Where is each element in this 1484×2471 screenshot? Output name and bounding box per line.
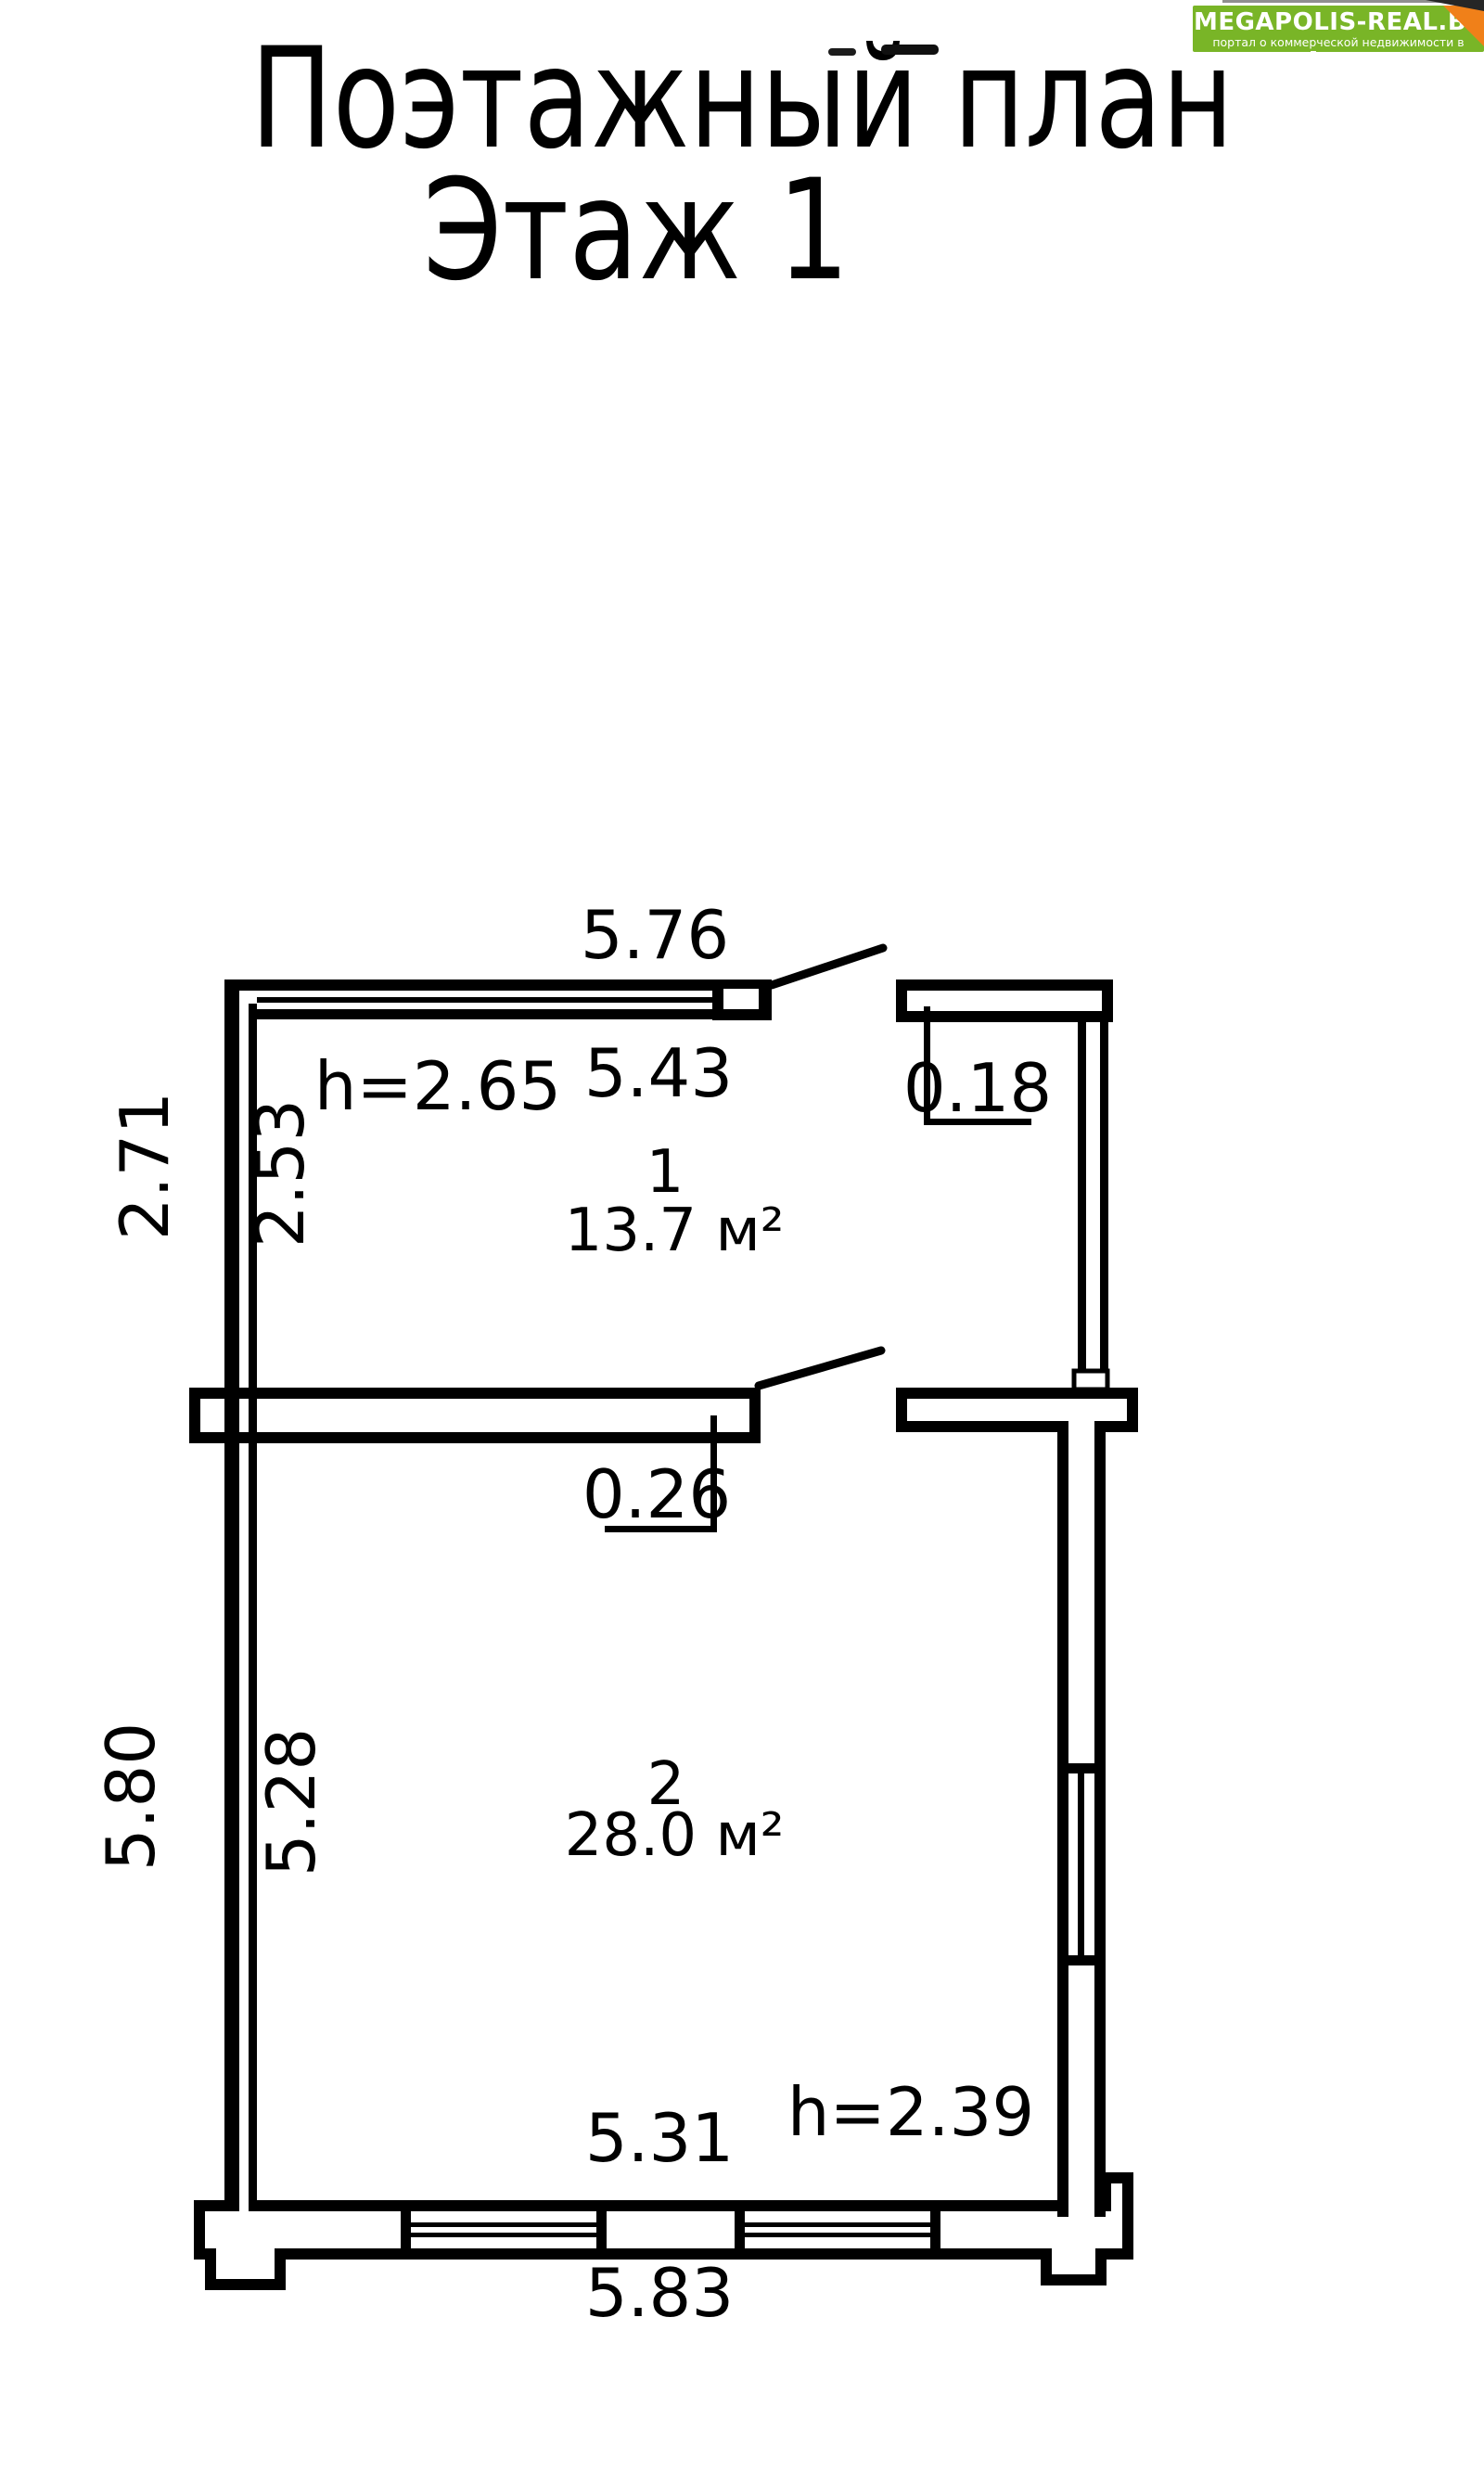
dim-room2-width-inner: 5.31 (585, 2099, 734, 2177)
room1-area: 13.7 м² (565, 1197, 785, 1265)
wall-middle-left (195, 1393, 755, 1438)
door-leaf-middle (759, 1351, 881, 1386)
bottom-separator-2 (596, 2206, 607, 2254)
wall-top-edge (224, 979, 772, 991)
scan-smudge-2 (881, 45, 939, 55)
logo-corner-fold-icon (1443, 6, 1484, 46)
wall-top-right (902, 985, 1107, 1017)
dim-room2-bottom-width: 5.83 (585, 2254, 734, 2332)
dim-partition-thickness: 0.18 (903, 1049, 1052, 1127)
bottom-separator-3 (735, 2206, 745, 2254)
dim-room1-width-inner: 5.43 (584, 1034, 733, 1112)
junction-left-wall-bottom (239, 2199, 249, 2212)
partition-line-right (1100, 1022, 1108, 1375)
window-bottom1-line1 (411, 2222, 596, 2227)
window-right-joint-bottom (1057, 1955, 1106, 1965)
dim-room2-depth-outer: 5.80 (92, 1722, 170, 1871)
logo-tagline: портал о коммерческой недвижимости в Бел… (1193, 36, 1484, 62)
dim-room2-ceiling-height: h=2.39 (787, 2073, 1034, 2151)
window-bottom2-line2 (745, 2233, 930, 2237)
dim-room1-ceiling-height: h=2.65 (314, 1047, 561, 1125)
wall-top-inner-edge (257, 1009, 712, 1019)
dim-room1-depth-outer: 2.71 (106, 1092, 184, 1240)
room2-area: 28.0 м² (565, 1801, 785, 1870)
door-jamb-top-core (723, 989, 759, 1009)
partition-joint-box (1074, 1371, 1107, 1389)
bottom-separator-1 (401, 2206, 411, 2254)
dim-room2-depth-inner: 5.28 (252, 1728, 330, 1876)
logo-megapolis-real[interactable]: MEGAPOLIS-REAL.BY портал о коммерческой … (1193, 6, 1484, 52)
wall-left-outer-line (224, 979, 239, 2211)
wall-right-inner-line (1057, 1421, 1068, 2217)
wall-right-outer-line (1094, 1421, 1106, 2217)
logo-site-name: MEGAPOLIS-REAL.BY (1193, 8, 1484, 36)
window-top-mid-line (257, 997, 712, 1003)
window-bottom1-line2 (411, 2233, 596, 2237)
window-right-mid-line (1078, 1768, 1084, 1965)
window-bottom2-line1 (745, 2222, 930, 2227)
dim-room1-depth-inner: 2.53 (241, 1099, 319, 1248)
door-leaf-top (772, 948, 883, 985)
scan-smudge-1 (828, 48, 856, 56)
floor-plan-page: Поэтажный план Этаж 1 (0, 0, 1484, 2471)
floor-plan-drawing: Поэтажный план Этаж 1 (0, 0, 1484, 2471)
partition-line-left (1078, 1022, 1086, 1375)
dim-room1-top-width: 5.76 (581, 896, 729, 974)
window-right-joint-top (1057, 1763, 1106, 1773)
dim-middle-wall-thickness: 0.26 (582, 1455, 731, 1533)
page-subtitle-floor: Этаж 1 (423, 150, 850, 312)
bottom-separator-4 (930, 2206, 940, 2254)
